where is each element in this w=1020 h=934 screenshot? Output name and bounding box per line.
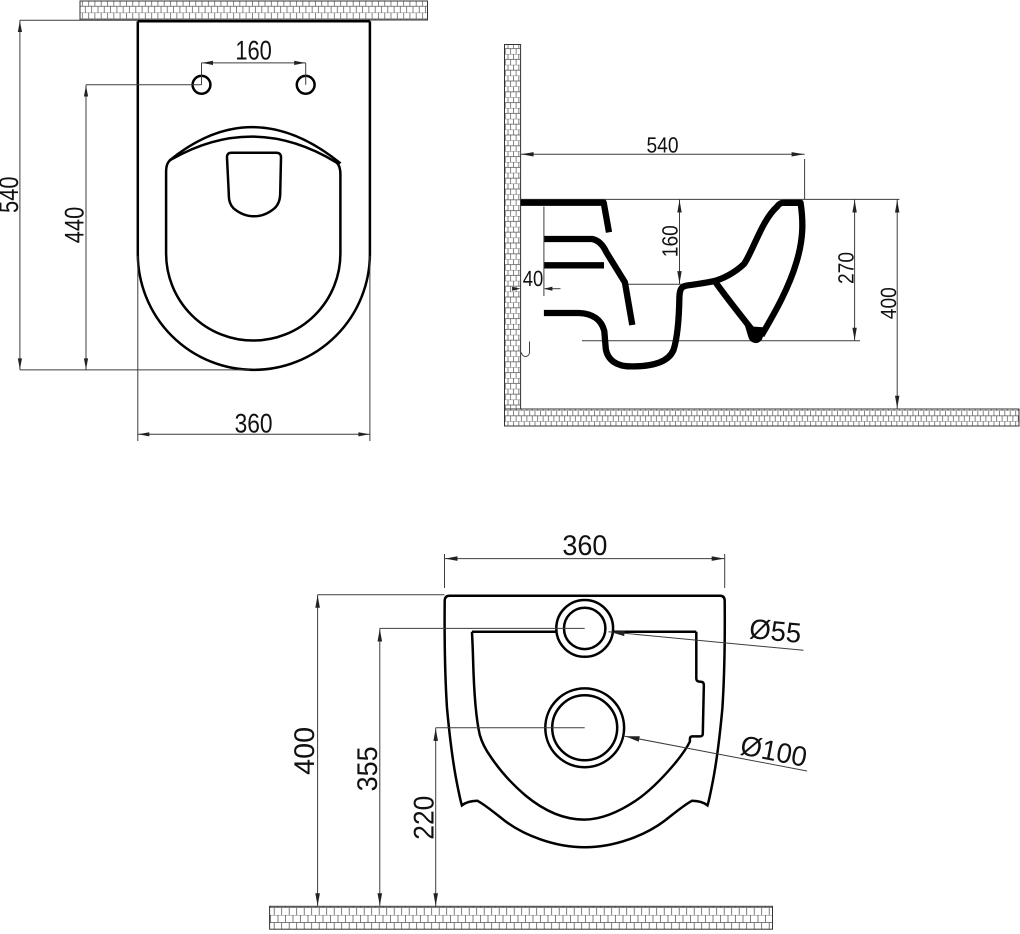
svg-text:540: 540 xyxy=(647,132,679,157)
svg-text:40: 40 xyxy=(523,266,544,291)
svg-text:355: 355 xyxy=(352,746,384,791)
svg-text:400: 400 xyxy=(289,727,321,775)
svg-text:400: 400 xyxy=(876,287,901,319)
svg-text:220: 220 xyxy=(408,796,440,840)
svg-text:440: 440 xyxy=(60,207,90,244)
svg-text:Ø55: Ø55 xyxy=(748,613,803,649)
svg-text:360: 360 xyxy=(235,408,273,438)
svg-text:360: 360 xyxy=(562,530,607,562)
svg-text:160: 160 xyxy=(235,36,272,66)
svg-text:270: 270 xyxy=(833,252,858,284)
svg-text:540: 540 xyxy=(0,176,24,213)
svg-text:160: 160 xyxy=(657,225,682,257)
